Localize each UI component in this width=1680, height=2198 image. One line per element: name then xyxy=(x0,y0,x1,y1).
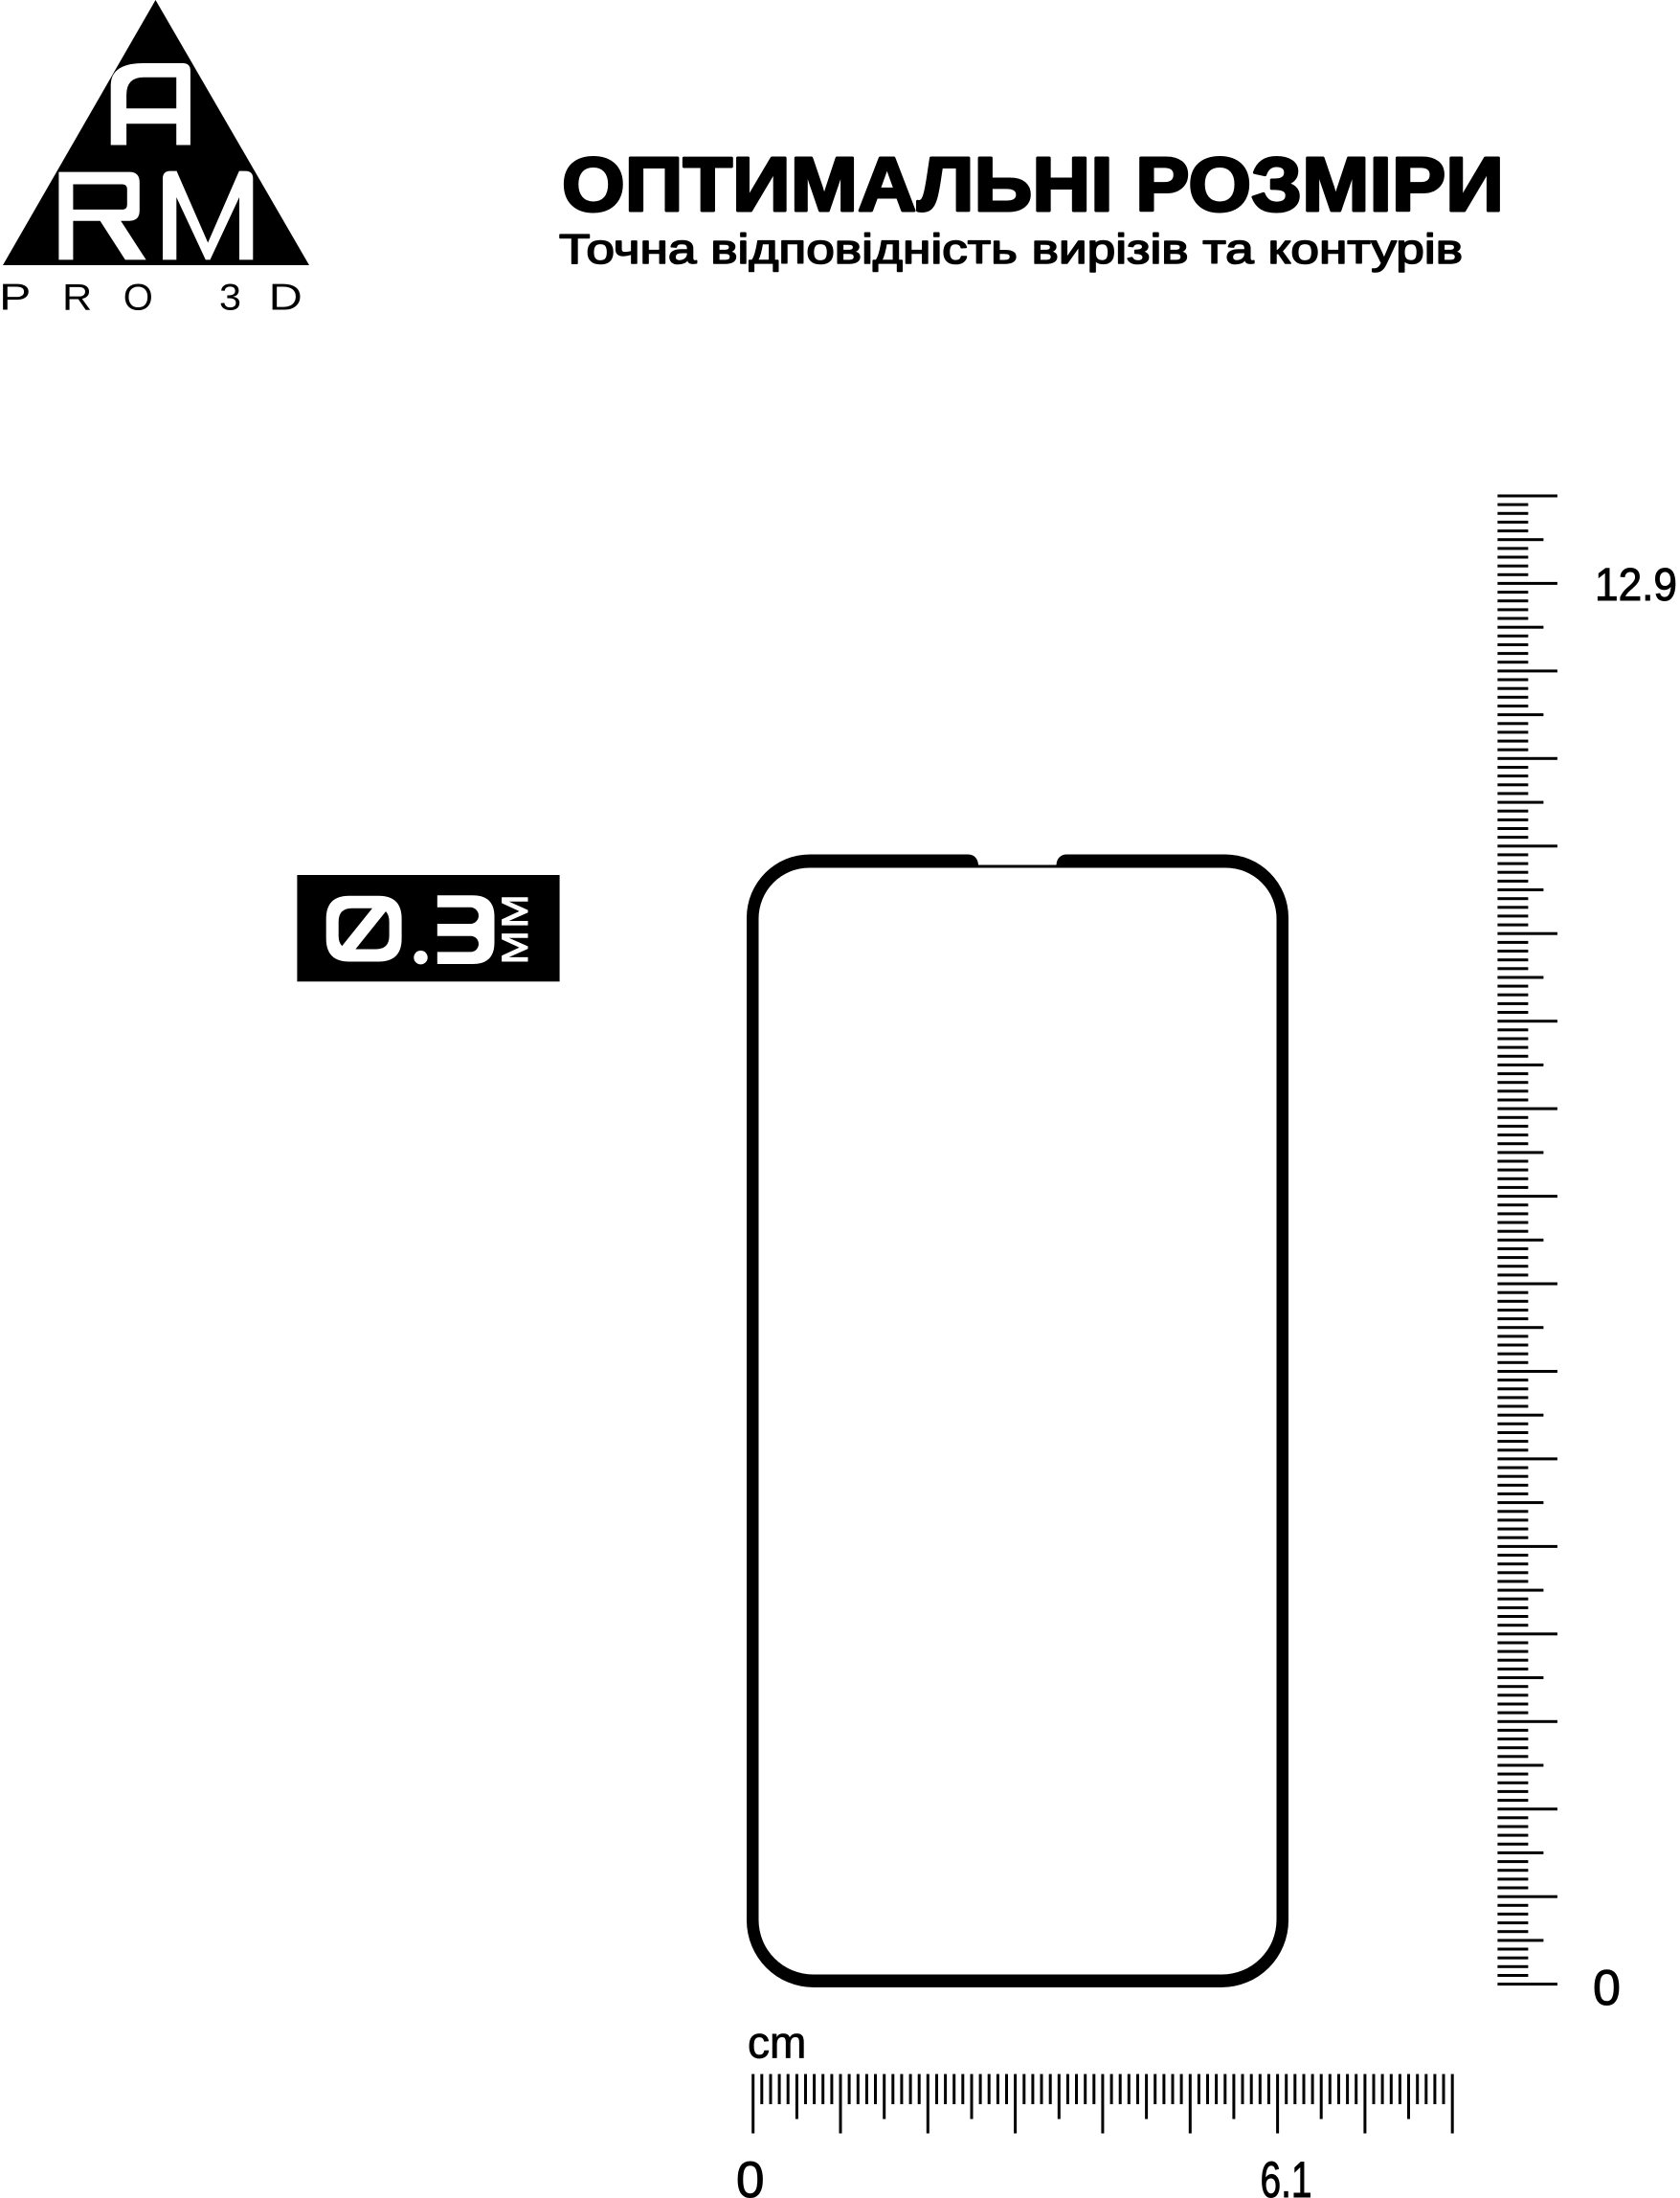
svg-text:ОПТИМАЛЬНІ РОЗМІРИ: ОПТИМАЛЬНІ РОЗМІРИ xyxy=(562,142,1504,227)
svg-text:Точна відповідність вирізів та: Точна відповідність вирізів та контурів xyxy=(559,226,1463,273)
svg-text:D: D xyxy=(269,278,302,319)
svg-text:cm: cm xyxy=(748,2018,806,2068)
svg-text:0: 0 xyxy=(1593,1961,1621,2016)
svg-text:12.9: 12.9 xyxy=(1595,560,1677,611)
svg-text:3: 3 xyxy=(219,278,241,319)
svg-text:R: R xyxy=(62,278,92,319)
svg-text:P: P xyxy=(0,278,31,319)
svg-text:0: 0 xyxy=(736,2152,764,2198)
svg-text:O: O xyxy=(123,278,153,319)
svg-text:6.1: 6.1 xyxy=(1261,2152,1312,2198)
